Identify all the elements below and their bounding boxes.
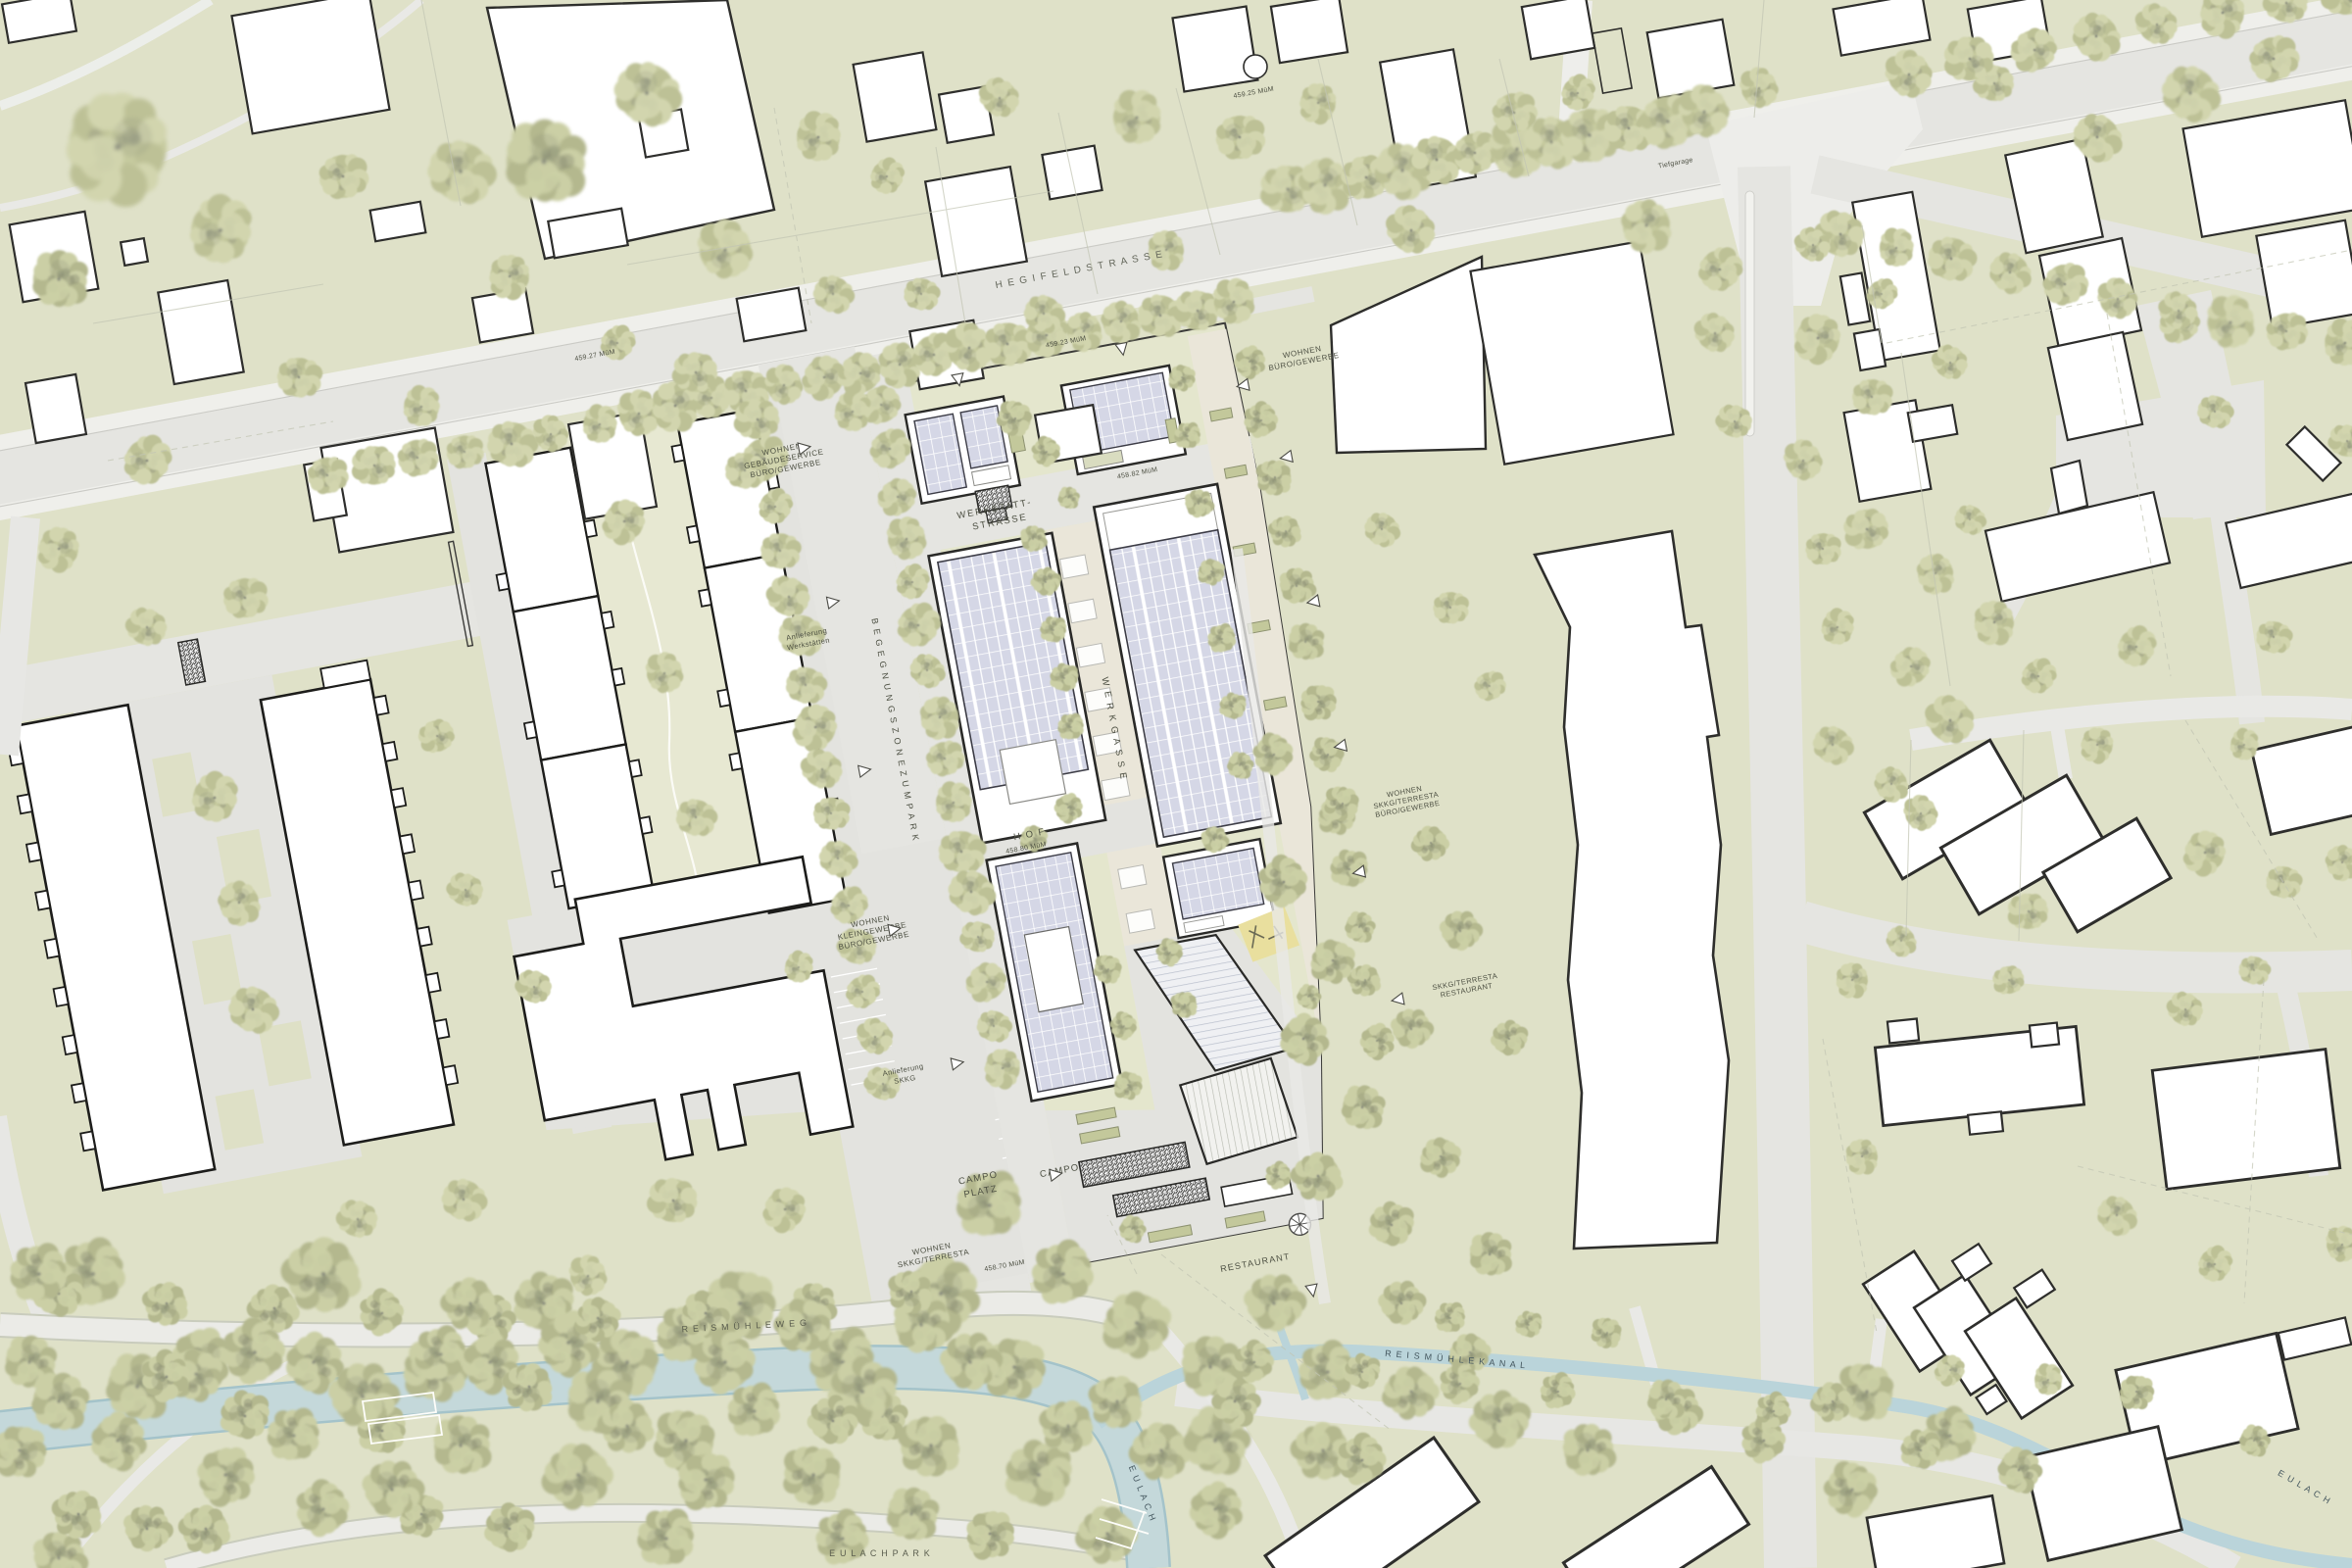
svg-text:E U L A C H P A R K: E U L A C H P A R K <box>829 1548 931 1558</box>
